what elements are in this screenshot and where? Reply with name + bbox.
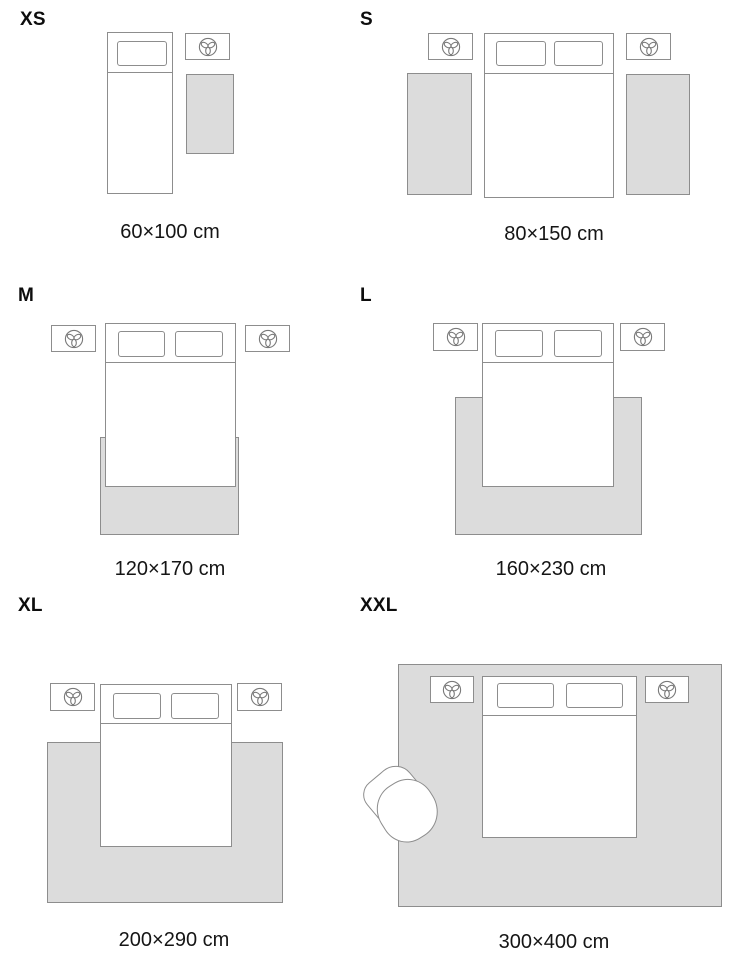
size-label: XL xyxy=(18,596,43,615)
double-bed xyxy=(100,684,232,847)
size-label: XXL xyxy=(360,596,398,615)
size-label: L xyxy=(360,286,372,305)
size-label: M xyxy=(18,286,34,305)
double-bed xyxy=(484,33,614,198)
nightstand-left xyxy=(51,325,96,352)
rug-dimensions: 200×290 cm xyxy=(64,930,284,950)
rug-dimensions: 80×150 cm xyxy=(444,224,664,244)
plant-icon xyxy=(440,36,462,58)
double-bed xyxy=(482,323,614,487)
nightstand-right xyxy=(620,323,665,351)
size-label: S xyxy=(360,10,373,29)
nightstand-right xyxy=(237,683,282,711)
plant-icon xyxy=(656,679,678,701)
rug-dimensions: 120×170 cm xyxy=(60,559,280,579)
nightstand-left xyxy=(50,683,95,711)
rug-right xyxy=(626,74,690,195)
plant-icon xyxy=(62,686,84,708)
nightstand-left xyxy=(428,33,473,60)
rug-dimensions: 300×400 cm xyxy=(444,932,664,952)
pillow-left xyxy=(497,683,554,708)
pillow-left xyxy=(495,330,543,357)
plant-icon xyxy=(638,36,660,58)
double-bed xyxy=(105,323,236,487)
rug-dimensions: 60×100 cm xyxy=(60,222,280,242)
pillow-right xyxy=(171,693,219,719)
rug-left xyxy=(407,73,472,195)
plant-icon xyxy=(441,679,463,701)
nightstand-left xyxy=(430,676,474,703)
pillow-left xyxy=(113,693,161,719)
nightstand-left xyxy=(433,323,478,351)
plant-icon xyxy=(197,36,219,58)
rug xyxy=(186,74,234,154)
plant-icon xyxy=(249,686,271,708)
single-bed xyxy=(107,32,173,194)
nightstand-right xyxy=(626,33,671,60)
size-label: XS xyxy=(20,10,46,29)
rug-size-guide: XS 60×100 cm S 80×150 cm xyxy=(0,0,740,960)
bed-headboard xyxy=(485,34,613,74)
plant-icon xyxy=(257,328,279,350)
double-bed xyxy=(482,676,637,838)
bed-headboard xyxy=(108,33,172,73)
pillow-right xyxy=(554,41,603,66)
bed-headboard xyxy=(101,685,231,724)
plant-icon xyxy=(63,328,85,350)
nightstand xyxy=(185,33,230,60)
pillow-left xyxy=(118,331,165,357)
nightstand-right xyxy=(645,676,689,703)
bed-headboard xyxy=(106,324,235,363)
pillow-right xyxy=(566,683,623,708)
nightstand-right xyxy=(245,325,290,352)
plant-icon xyxy=(445,326,467,348)
bed-headboard xyxy=(483,324,613,363)
pillow-right xyxy=(554,330,602,357)
rug-dimensions: 160×230 cm xyxy=(441,559,661,579)
plant-icon xyxy=(632,326,654,348)
bed-headboard xyxy=(483,677,636,716)
pillow-right xyxy=(175,331,223,357)
pillow xyxy=(117,41,167,66)
pillow-left xyxy=(496,41,546,66)
